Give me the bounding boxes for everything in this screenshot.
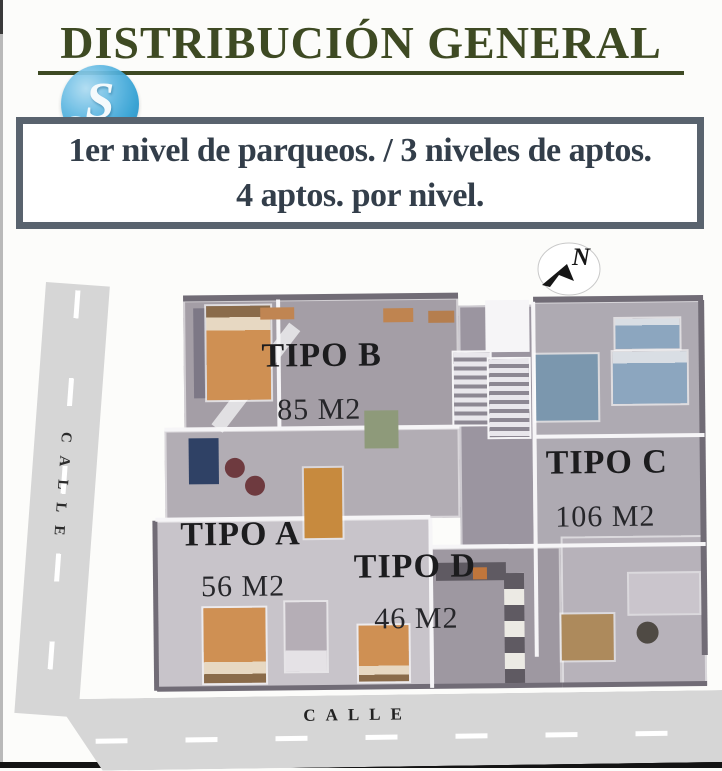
shelf: [260, 307, 294, 319]
floor-plan: TIPO B 85 M2 TIPO C 106 M2 TIPO A 56 M2 …: [128, 273, 709, 693]
page-title: DISTRIBUCIÓN GENERAL: [0, 16, 722, 69]
stairs: [454, 352, 491, 424]
wall-edge: [562, 681, 707, 688]
unit-d-area: 46 M2: [316, 601, 516, 637]
rug-navy: [189, 438, 219, 484]
shelf: [428, 311, 454, 323]
street-bottom: CALLE: [55, 690, 722, 771]
street-bottom-label: CALLE: [303, 704, 412, 726]
unit-c-area: 106 M2: [505, 499, 705, 535]
info-line-1: 1er nivel de parqueos. / 3 niveles de ap…: [68, 128, 651, 173]
stairs: [489, 359, 530, 437]
shelf: [383, 308, 413, 322]
unit-c-label: TIPO C: [507, 443, 707, 483]
unit-b-area: 85 M2: [219, 392, 419, 428]
street-bottom-dashes: [96, 730, 716, 744]
round-table-dark: [636, 621, 658, 643]
north-letter: N: [571, 244, 591, 271]
unit-d-label: TIPO D: [315, 547, 515, 587]
chair-maroon: [225, 458, 245, 478]
page-left-border: [0, 0, 3, 768]
info-box: 1er nivel de parqueos. / 3 niveles de ap…: [16, 117, 704, 229]
unit-b-label: TIPO B: [221, 336, 421, 376]
sofa-gray: [629, 573, 699, 614]
dining-table-wood: [561, 614, 613, 661]
bed-tan-bottom-left: [203, 608, 266, 684]
dining-table-blue: [536, 354, 599, 421]
info-line-2: 4 aptos. por nivel.: [236, 173, 484, 218]
chair-maroon: [245, 476, 265, 496]
bed-blue-small: [615, 318, 679, 349]
corridor-gap: [485, 300, 530, 352]
bed-blue-large: [613, 351, 688, 404]
title-underline: [38, 71, 684, 75]
street-left-label: CALLE: [49, 431, 75, 549]
unit-a-label: TIPO A: [140, 515, 340, 555]
wardrobe: [193, 308, 206, 398]
unit-a-area: 56 M2: [143, 569, 343, 605]
street-left: CALLE: [14, 282, 109, 718]
